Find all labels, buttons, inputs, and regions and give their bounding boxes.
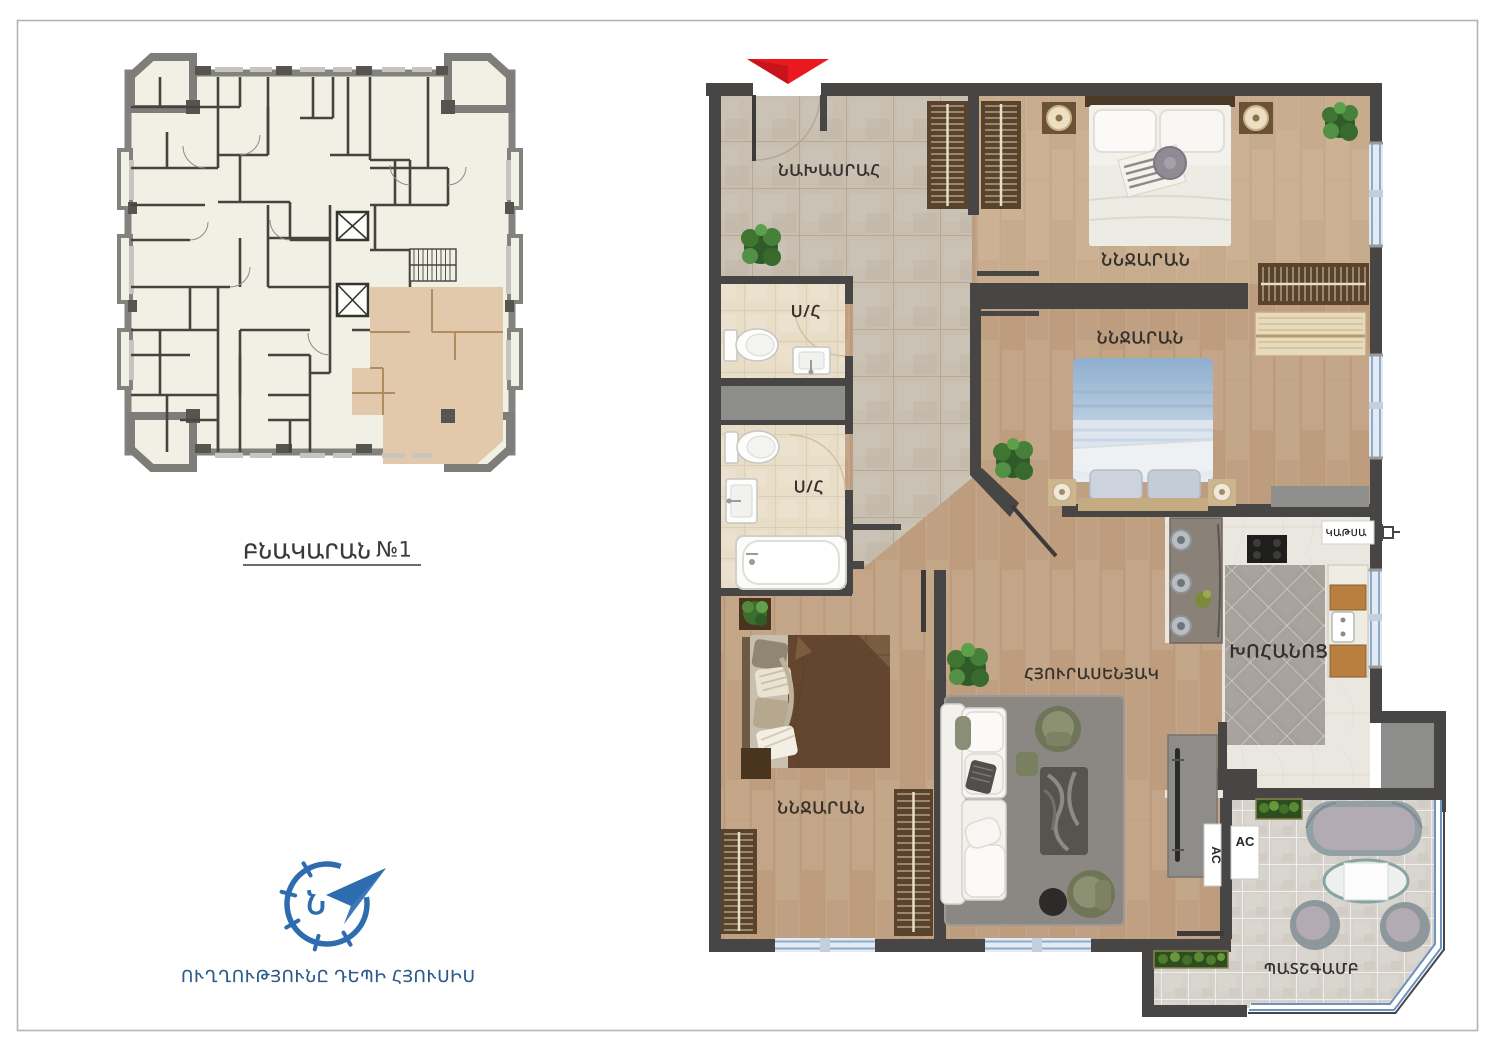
- svg-text:AC: AC: [1236, 834, 1255, 849]
- svg-text:AC: AC: [1209, 846, 1223, 864]
